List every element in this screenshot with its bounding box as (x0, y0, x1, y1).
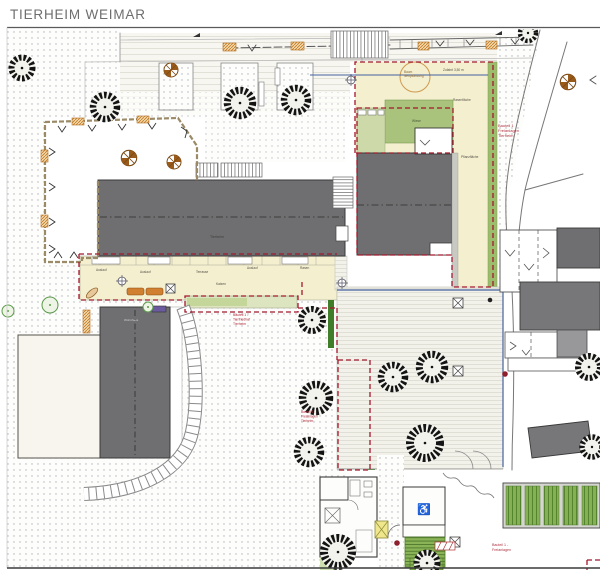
svg-text:Bauteil 1 -: Bauteil 1 - (233, 313, 248, 317)
site-plan-page: ♿ (0, 0, 600, 570)
svg-text:Tierfriedhof: Tierfriedhof (233, 318, 250, 322)
svg-text:Tierheim: Tierheim (498, 133, 514, 138)
main-building (98, 180, 345, 256)
entrance-marker (152, 306, 166, 312)
stairs (333, 177, 353, 208)
tree (406, 424, 444, 462)
shrub (2, 305, 14, 317)
svg-text:Tierheim: Tierheim (233, 322, 246, 326)
micro-label: Terrasse (196, 270, 208, 274)
micro-label: Auslauf (247, 266, 258, 270)
tree (9, 55, 35, 81)
marker-dot (394, 540, 400, 546)
shrub (42, 297, 58, 313)
gate-icon (137, 116, 149, 123)
gate-icon (223, 43, 236, 51)
svg-text:Freianlagen: Freianlagen (492, 548, 511, 552)
bench-icon (127, 288, 144, 295)
gate-icon (41, 150, 48, 162)
tree (416, 351, 448, 383)
hedge-strip-east (488, 62, 497, 288)
tree (281, 85, 311, 115)
felled-tree-icon (167, 155, 181, 169)
svg-text:Tierheim: Tierheim (301, 419, 314, 423)
building-west (18, 335, 100, 458)
bench-icon (146, 288, 163, 295)
steps-icon (83, 310, 90, 333)
micro-label: Rasen (300, 266, 309, 270)
micro-label: Zufahrt 3,50 m (443, 68, 464, 72)
tree (320, 534, 356, 570)
gate-icon (418, 42, 429, 50)
wheelchair-icon: ♿ (417, 503, 431, 516)
micro-label: Wiese (412, 119, 421, 123)
tree (90, 92, 120, 122)
gate-icon (72, 118, 84, 125)
house-label: Wohnhaus (124, 318, 139, 322)
annotation-bauteil1-sued: Bauteil 1 - Freianlagen (492, 543, 511, 552)
building-east (357, 153, 452, 255)
gate-icon (41, 215, 48, 227)
page-title: TIERHEIM WEIMAR (10, 7, 146, 22)
tree (298, 306, 326, 334)
site-plan-svg: ♿ (0, 0, 600, 570)
micro-label: Katzen (216, 282, 226, 286)
micro-label: Auslauf (140, 270, 151, 274)
survey-point-icon (488, 298, 493, 303)
felled-tree-icon (121, 150, 136, 165)
micro-label: Pflanzfläche (461, 155, 479, 159)
hedge-strip (328, 300, 334, 348)
marker-dot (502, 371, 508, 377)
svg-text:Bauteil 1 -: Bauteil 1 - (492, 543, 509, 547)
shrub (143, 302, 153, 312)
micro-label: Auslauf (96, 268, 107, 272)
parking-grass-pavers (503, 483, 600, 528)
svg-text:Bauteil 2 -: Bauteil 2 - (301, 410, 315, 414)
gate-icon (486, 41, 497, 49)
felled-tree-icon (164, 63, 178, 77)
gate-icon (291, 42, 304, 50)
tree (224, 87, 256, 119)
micro-label: Rasenfläche (453, 98, 471, 102)
tree (294, 437, 324, 467)
svg-text:Freianlagen: Freianlagen (301, 415, 318, 419)
felled-tree-icon (560, 74, 575, 89)
tree (378, 362, 408, 392)
micro-label: Neupflanzung (404, 74, 424, 78)
main-building-label: Tierheim (210, 235, 224, 239)
